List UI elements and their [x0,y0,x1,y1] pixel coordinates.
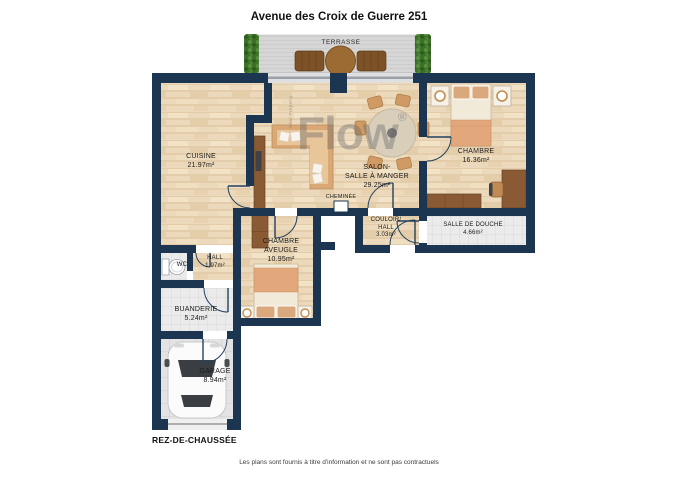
room-label-salle-de-douche: SALLE DE DOUCHE 4.66m² [427,222,519,237]
room-name: BUANDERIE [156,306,236,315]
room-label-wc: WC [172,262,192,270]
room-name: CHEMINÉE [311,194,371,201]
watermark-registered-icon: ® [398,110,406,124]
watermark-vertical-text: Real Property [288,95,293,128]
room-name: COULOIR/ [356,217,416,225]
garage-door-opening [168,419,227,430]
room-name: GARAGE [181,368,249,377]
sliding-door-terrace-1 [268,73,330,83]
room-name: SALON- [327,164,427,173]
room-label-couloir: COULOIR/ HALL 3.03m² [356,217,416,240]
room-label-chambre-aveugle: CHAMBRE AVEUGLE 10.95m² [241,238,321,264]
disclaimer-text: Les plans sont fournis à titre d'informa… [0,459,678,466]
room-name: SALLE À MANGER [327,173,427,182]
room-name: CHAMBRE [436,148,516,157]
room-label-buanderie: BUANDERIE 5.24m² [156,306,236,324]
room-area: 8.94m² [181,377,249,386]
watermark-logo: Flow® [297,106,406,160]
room-area: 5.24m² [156,315,236,324]
room-name: HALL [195,255,235,263]
room-name: TERRASSE [321,39,360,46]
room-name: AVEUGLE [241,247,321,256]
room-label-cheminee: CHEMINÉE [311,194,371,201]
room-name: SALLE DE DOUCHE [427,222,519,230]
room-area: 21.97m² [161,162,241,171]
hedge-left-icon [244,34,259,74]
floor-label: REZ-DE-CHAUSSÉE [152,435,237,445]
floor-kitchen-ext [161,208,233,245]
sliding-door-terrace-2 [347,73,413,83]
hedge-right-icon [415,34,431,74]
room-label-garage: GARAGE 8.94m² [181,368,249,386]
room-label-terrasse: TERRASSE [291,39,391,46]
room-area: 3.03m² [356,232,416,240]
floorplan-svg [0,0,678,480]
room-label-salon: SALON- SALLE À MANGER 29.25m² [327,164,427,190]
room-area: 1.97m² [195,263,235,271]
room-label-cuisine: CUISINE 21.97m² [161,153,241,171]
room-name: CUISINE [161,153,241,162]
room-label-hall: HALL 1.97m² [195,255,235,270]
room-area: 16.36m² [436,157,516,166]
fireplace-icon [334,201,348,212]
room-label-chambre: CHAMBRE 16.36m² [436,148,516,166]
floorplan-page: Flow® Real Property Avenue des Croix de … [0,0,678,480]
tv-sideboard-icon [254,136,265,212]
room-name: HALL [356,225,416,233]
room-area: 10.95m² [241,256,321,265]
page-title: Avenue des Croix de Guerre 251 [0,11,678,23]
room-area: 29.25m² [327,182,427,191]
room-name: WC [172,262,192,270]
room-area: 4.66m² [427,230,519,238]
room-name: CHAMBRE [241,238,321,247]
watermark-brand: Flow [297,107,398,159]
dresser-icon [427,194,481,208]
